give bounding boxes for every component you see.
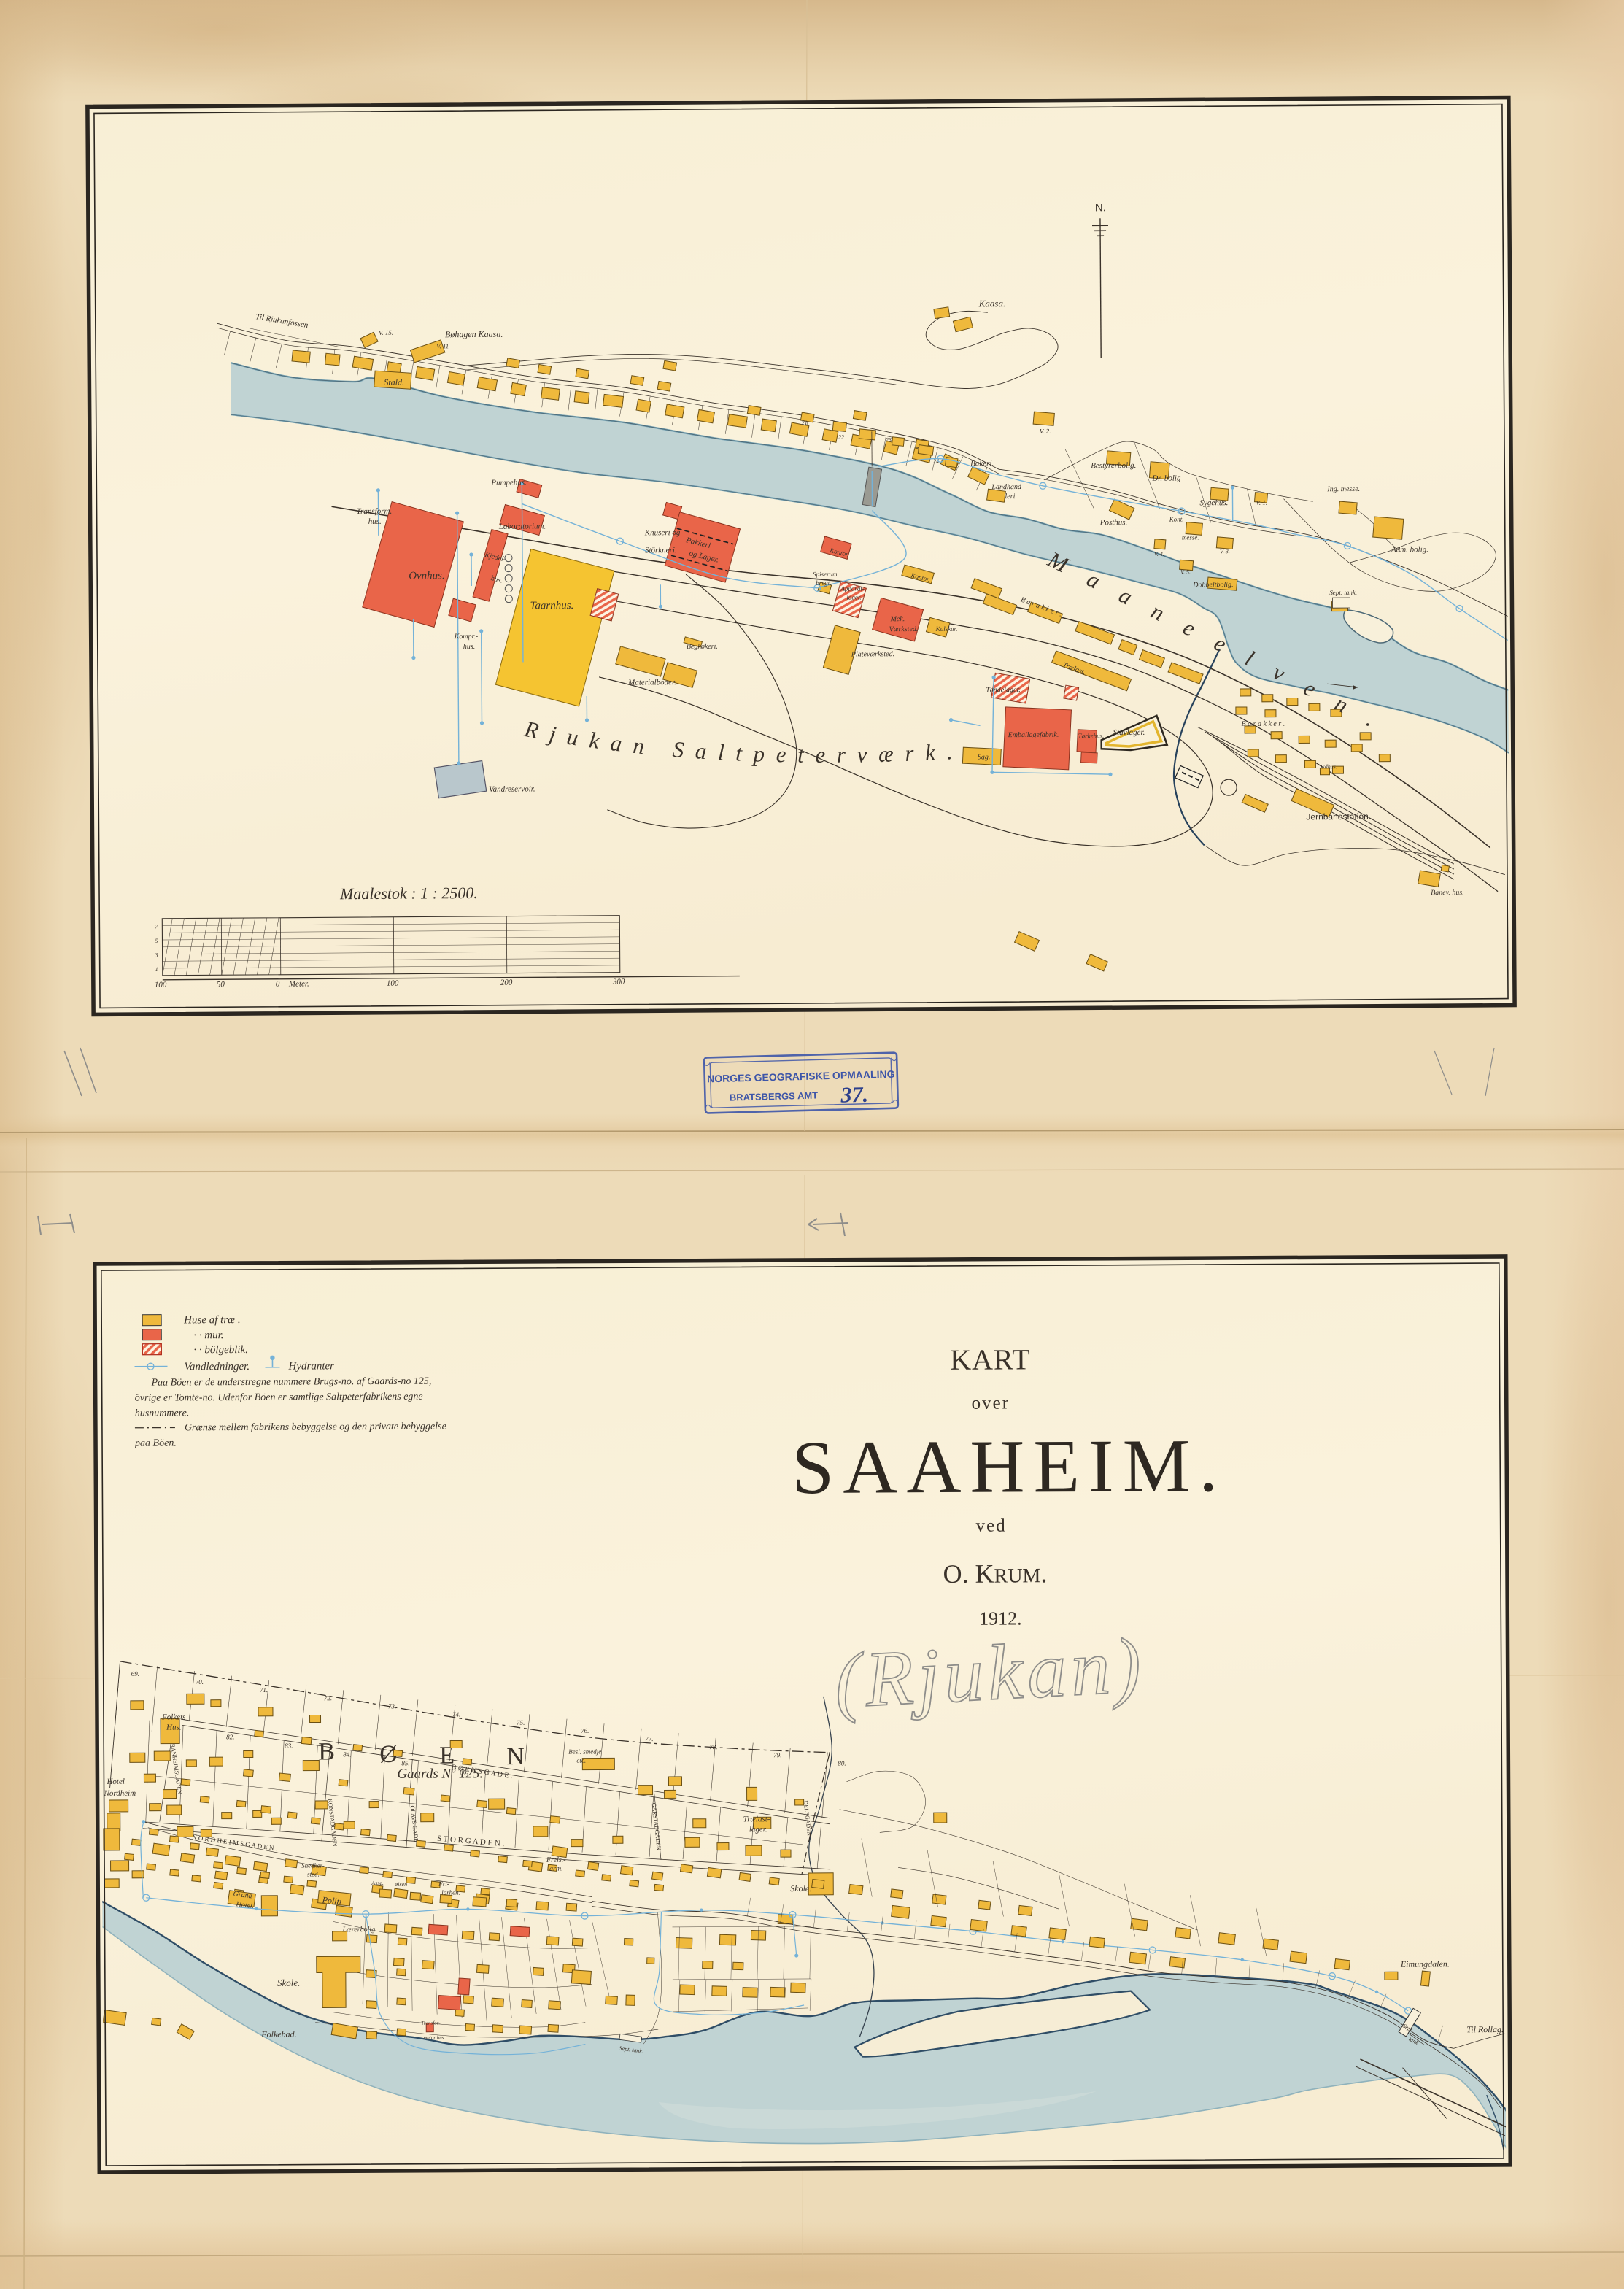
svg-text:Banev. hus.: Banev. hus. [1431,889,1464,897]
svg-text:leri.: leri. [1005,493,1016,501]
svg-text:77.: 77. [645,1735,653,1742]
svg-text:300: 300 [612,978,625,987]
svg-text:Eimungdalen.: Eimungdalen. [1400,1958,1450,1969]
svg-text:N.: N. [1095,201,1106,214]
svg-text:37.: 37. [840,1083,868,1108]
svg-text:0: 0 [276,980,280,989]
svg-text:Paa Böen er de understregne nu: Paa Böen er de understregne nummere Brug… [151,1376,432,1389]
svg-text:(Rjukan): (Rjukan) [832,1622,1147,1725]
svg-text:Kaasa.: Kaasa. [978,298,1006,309]
svg-text:Bestyrerbolig.: Bestyrerbolig. [1091,461,1136,470]
svg-text:Maalestok : 1 : 2500.: Maalestok : 1 : 2500. [339,884,478,903]
svg-text:övrige er Tomte-no. Udenfor B: övrige er Tomte-no. Udenfor Böen er samt… [135,1391,423,1404]
svg-text:Besl. smedje: Besl. smedje [568,1748,601,1755]
svg-text:22: 22 [838,434,844,441]
svg-text:Knuseri og: Knuseri og [644,528,681,537]
svg-text:Jernbanestation.: Jernbanestation. [1306,811,1371,822]
svg-text:50: 50 [217,980,225,989]
svg-text:82.: 82. [226,1733,234,1740]
svg-text:Nordheim: Nordheim [104,1789,136,1798]
svg-text:200: 200 [500,978,513,987]
svg-text:Dobbeltbolig.: Dobbeltbolig. [1192,581,1233,589]
svg-text:1912.: 1912. [979,1607,1022,1629]
svg-text:Værksted.: Værksted. [889,625,919,633]
svg-text:øisen: øisen [394,1881,407,1888]
svg-text:Hotel: Hotel [106,1777,125,1786]
svg-text:ved: ved [976,1516,1007,1536]
svg-text:V. 2.: V. 2. [1040,428,1051,435]
svg-text:74.: 74. [452,1711,460,1718]
svg-text:Pumpehus.: Pumpehus. [490,478,527,487]
svg-text:Stald.: Stald. [384,377,404,387]
svg-text:Bøhagen Kaasa.: Bøhagen Kaasa. [445,329,503,340]
svg-text:Apparat-: Apparat- [840,584,865,592]
svg-text:72.: 72. [324,1694,332,1702]
svg-text:Asse.: Asse. [371,1880,384,1886]
svg-text:75.: 75. [517,1719,525,1726]
svg-text:Emballagefabrik.: Emballagefabrik. [1008,731,1059,739]
svg-text:Dr. bolig: Dr. bolig [1151,474,1181,483]
svg-text:100: 100 [387,979,399,988]
svg-text:Tøndelager.: Tøndelager. [986,686,1021,694]
svg-text:Vandreservoir.: Vandreservoir. [489,784,535,793]
svg-text:Skole.: Skole. [277,1977,300,1988]
svg-text:Snedker-: Snedker- [301,1861,325,1869]
svg-text:SAAHEIM.: SAAHEIM. [792,1424,1226,1510]
svg-text:Kompr.-: Kompr.- [454,633,479,641]
svg-text:V. 4.: V. 4. [1154,551,1164,557]
svg-text:messe.: messe. [1182,533,1199,541]
svg-text:1: 1 [155,966,158,973]
svg-text:Landhand-: Landhand- [991,483,1024,491]
svg-text:BRATSBERGS AMT: BRATSBERGS AMT [730,1089,819,1103]
svg-text:Kont.: Kont. [1169,516,1184,523]
svg-text:Folkets: Folkets [161,1713,185,1721]
svg-text:Vandledninger.: Vandledninger. [184,1361,250,1373]
svg-text:100: 100 [155,981,167,989]
svg-text:mator hus: mator hus [423,2035,444,2041]
svg-text:N: N [506,1743,525,1770]
svg-text:Mek.: Mek. [890,615,905,623]
svg-text:V. 3.: V. 3. [1220,548,1230,555]
svg-text:· · bölgeblik.: · · bölgeblik. [193,1344,248,1356]
svg-text:Meter.: Meter. [288,979,309,988]
svg-text:V. 15.: V. 15. [379,329,393,336]
svg-text:Tørkehus.: Tørkehus. [1078,732,1105,739]
svg-text:Störkneri.: Störkneri. [645,546,677,555]
svg-text:V. 11: V. 11 [436,342,449,350]
svg-text:Til Rollag.: Til Rollag. [1466,2024,1504,2034]
svg-text:V. 5.: V. 5. [1180,568,1191,575]
svg-text:Sygehus.: Sygehus. [1199,498,1228,507]
svg-text:Transfor-: Transfor- [421,2020,441,2026]
svg-text:etc.: etc. [576,1757,586,1764]
svg-text:lager.: lager. [749,1825,767,1834]
svg-text:Trælast-: Trælast- [743,1815,770,1823]
svg-text:Sag.: Sag. [978,753,991,761]
svg-text:hus.: hus. [368,517,382,526]
svg-text:Huse af træ .: Huse af træ . [183,1314,241,1326]
svg-text:71.: 71. [260,1686,268,1694]
svg-text:V. 1.: V. 1. [1256,499,1267,506]
svg-text:80.: 80. [838,1759,846,1767]
svg-text:Transform.: Transform. [357,507,393,516]
svg-text:69.: 69. [131,1670,139,1678]
svg-text:Posthus.: Posthus. [1099,518,1128,527]
svg-text:Hus.: Hus. [166,1723,182,1732]
svg-text:paa Böen.: paa Böen. [134,1437,177,1448]
svg-text:brvgt.: brvgt. [816,579,831,587]
svg-text:23: 23 [886,436,892,443]
svg-text:lager.: lager. [846,593,861,601]
svg-text:Ing. messe.: Ing. messe. [1326,485,1360,493]
svg-text:Adm. bolig.: Adm. bolig. [1391,545,1428,554]
svg-text:· · mur.: · · mur. [193,1329,223,1341]
svg-text:79.: 79. [773,1751,781,1759]
svg-text:Laboratorium.: Laboratorium. [498,522,546,530]
svg-text:Udhus.: Udhus. [1321,763,1337,770]
svg-text:Frels.-: Frels.- [546,1856,566,1864]
svg-text:21: 21 [802,420,808,426]
svg-text:hus.: hus. [463,643,475,651]
svg-text:Plateværksted.: Plateværksted. [851,650,894,658]
svg-text:Sept. tank.: Sept. tank. [1329,589,1357,596]
svg-text:Hydranter: Hydranter [287,1360,334,1372]
svg-text:Fri-: Fri- [438,1880,449,1888]
svg-text:3: 3 [155,952,158,958]
svg-text:arm.: arm. [549,1865,563,1873]
svg-text:Politi: Politi [321,1894,342,1907]
svg-text:76.: 76. [581,1727,589,1734]
svg-text:Stavlager.: Stavlager. [1113,728,1145,737]
svg-text:5: 5 [155,938,158,944]
svg-text:Folkebad.: Folkebad. [260,2029,296,2039]
svg-text:Lærerbolig: Lærerbolig [342,1926,376,1934]
svg-text:Kulskur.: Kulskur. [935,625,958,633]
svg-text:sted.: sted. [307,1870,320,1877]
svg-text:husnummere.: husnummere. [135,1408,190,1418]
svg-text:78.: 78. [709,1743,717,1750]
svg-text:70.: 70. [196,1678,204,1686]
svg-text:KART: KART [950,1343,1031,1376]
svg-text:73.: 73. [388,1702,396,1710]
svg-text:Materialboder.: Materialboder. [627,678,676,687]
svg-text:Ovnhus.: Ovnhus. [409,570,445,582]
svg-text:83.: 83. [285,1742,293,1749]
svg-text:B a r a k k e r .: B a r a k k e r . [1242,720,1285,728]
svg-text:Grænse mellem fabrikens bebygg: Grænse mellem fabrikens bebyggelse og de… [185,1421,446,1434]
svg-text:Skole.: Skole. [790,1883,811,1894]
svg-text:B: B [318,1738,335,1765]
svg-text:Spiserum.: Spiserum. [813,571,839,578]
svg-text:Taarnhus.: Taarnhus. [530,600,573,611]
svg-text:over: over [971,1394,1010,1413]
svg-text:84.: 84. [343,1750,351,1758]
svg-text:Begkøkeri.: Begkøkeri. [687,643,718,651]
